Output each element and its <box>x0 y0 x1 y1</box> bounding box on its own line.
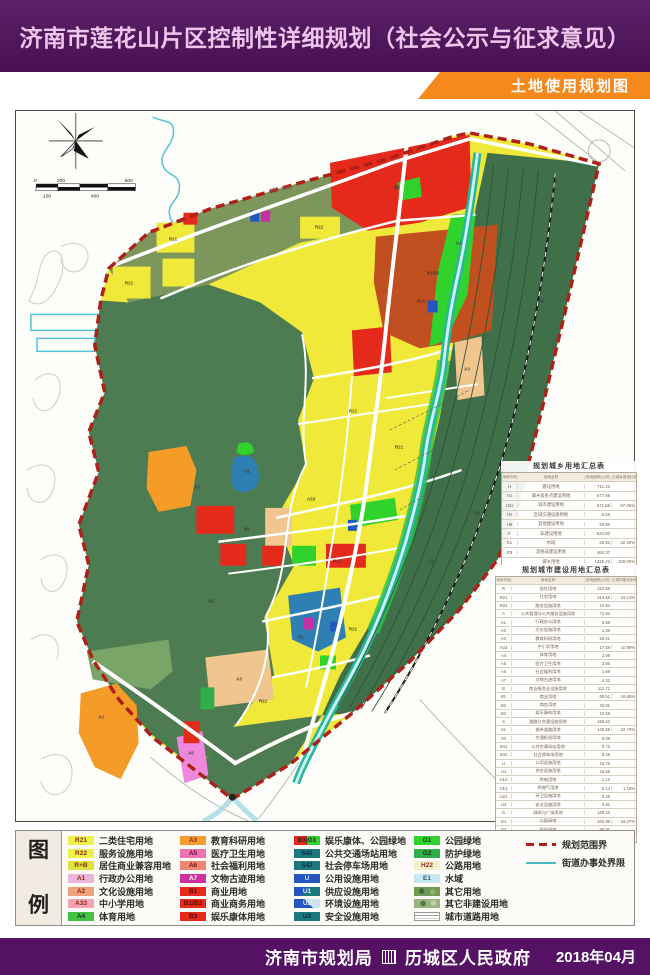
table-cell: 供电用地 <box>512 777 584 783</box>
table-cell: S <box>496 719 512 724</box>
legend-swatch: R22 <box>68 849 94 858</box>
table-cell: E <box>502 531 518 536</box>
table-cell: 55.41 <box>584 636 611 641</box>
table-cell: 10.89% <box>611 645 636 650</box>
legend-swatch: A2 <box>68 887 94 896</box>
table-row: S42社会停车场用地9.28 <box>496 751 636 759</box>
legend-item-label: 教育科研用地 <box>211 834 265 847</box>
table-cell: 城市建设用地 <box>518 502 584 508</box>
boundary-tip-node <box>229 794 236 801</box>
table-cell: 环卫设施用地 <box>512 793 584 799</box>
legend-item: B1/B2商业商务用地 <box>180 898 294 909</box>
table-row: S1城市道路用地145.5822.79% <box>496 726 636 734</box>
table-cell: 42.27% <box>611 819 636 824</box>
table-cell: E1 <box>502 540 518 545</box>
table-cell: 道路与交通设施用地 <box>512 719 584 725</box>
table-cell: A2 <box>496 628 512 633</box>
table-cell: 71.92 <box>584 611 611 616</box>
table-cell: H2 <box>502 512 518 517</box>
table-cell: G1 <box>496 819 512 824</box>
legend-item-label: 服务设施用地 <box>99 847 153 860</box>
legend-swatch: S42 <box>294 861 320 870</box>
table-cell: B <box>496 686 512 691</box>
table-cell: 0.82 <box>584 802 611 807</box>
legend-item-label: 公路用地 <box>445 859 481 872</box>
table-row: H11城市建设用地671.6697.06% <box>502 501 636 510</box>
table-cell: 2.98 <box>584 653 611 658</box>
table-cell: A4 <box>496 653 512 658</box>
table-cell: 行政办公用地 <box>512 619 584 625</box>
legend-item-label: 城市道路用地 <box>445 910 499 923</box>
table-header-row: 用地代码用地名称用地面积(公顷)占城乡用地比例(%) <box>502 473 636 482</box>
legend-swatch: U <box>294 874 320 883</box>
legend-item-label: 体育用地 <box>99 910 135 923</box>
table-row: A公共管理与公共服务设施用地71.92 <box>496 610 636 618</box>
legend-item-label: 街道办事处界限 <box>562 856 625 869</box>
legend-swatch: R+B <box>68 861 94 870</box>
legend-swatch: A5 <box>180 849 206 858</box>
table-cell: 1.68 <box>584 669 611 674</box>
table-cell: 城乡居民点建设用地 <box>518 493 584 499</box>
table-cell: A <box>496 611 512 616</box>
legend-swatch: G1 <box>414 836 440 845</box>
legend-item-label: 规划范围界 <box>562 838 607 851</box>
table-cell: 区域交通设施用地 <box>518 512 584 518</box>
legend-swatch: A3 <box>180 836 206 845</box>
table-row: R22服务设施用地10.84 <box>496 602 636 610</box>
streams <box>203 797 257 821</box>
legend-item: B3|G1娱乐康体、公园绿地 <box>294 835 414 846</box>
legend-item-label: 商业用地 <box>211 885 247 898</box>
table-cell: 145.58 <box>584 727 611 732</box>
table-cell: 娱乐康体用地 <box>512 710 584 716</box>
table-cell: 公共管理与公共服务设施用地 <box>512 611 584 617</box>
table-cell: 用地名称 <box>518 475 584 480</box>
table-cell: 建设用地 <box>518 484 584 490</box>
terrain-contours <box>27 243 88 794</box>
legend-item-label: 防护绿地 <box>445 847 481 860</box>
table-row: E1水域25.8242.40% <box>502 539 636 548</box>
legend-swatch <box>414 887 440 896</box>
legend-item-label: 公园绿地 <box>445 834 481 847</box>
table-cell: 524.00 <box>584 531 611 536</box>
table-row: A5医疗卫生用地2.56 <box>496 660 636 668</box>
legend-item: S41公共交通场站用地 <box>294 848 414 859</box>
table-row: U公用设施用地16.75 <box>496 760 636 768</box>
scale-bar: 0 200 600 100 400 <box>34 178 136 200</box>
legend-item: A4体育用地 <box>68 911 180 922</box>
table-cell: 155.52 <box>584 719 611 724</box>
legend-item: B1商业用地 <box>180 886 294 897</box>
table-row: B3娱乐康体用地10.58 <box>496 710 636 718</box>
table-row: A3教育科研用地55.41 <box>496 635 636 643</box>
legend-swatch: B3 <box>180 912 206 921</box>
seal-icon <box>382 950 396 964</box>
legend-column: R21二类住宅用地R22服务设施用地R+B居住商业兼容用地A1行政办公用地A2文… <box>68 835 180 922</box>
legend-swatch: S41 <box>294 849 320 858</box>
table-cell: 占城市建设用地比例(%) <box>611 578 636 583</box>
legend-line-item: 街道办事处界限 <box>526 857 632 868</box>
table-cell: 10.58 <box>584 711 611 716</box>
legend-swatch: B3|G1 <box>294 836 320 845</box>
table-cell: S42 <box>496 752 512 757</box>
table-cell: 17.59 <box>584 645 611 650</box>
svg-text:100: 100 <box>43 194 52 200</box>
table-cell: 15.68 <box>584 769 611 774</box>
table-cell: 医疗卫生用地 <box>512 661 584 667</box>
table-row: H2区域交通设施用地6.25 <box>502 511 636 520</box>
planning-map: N 0 200 600 100 400 经十东路 R21R21R22B1B1/B… <box>15 110 635 822</box>
table-cell: 2.56 <box>584 661 611 666</box>
legend-item-label: 社会停车场用地 <box>325 859 388 872</box>
table-cell: 体育用地 <box>512 652 584 658</box>
legend-item-label: 环境设施用地 <box>325 897 379 910</box>
table-cell: 9.28 <box>584 752 611 757</box>
summary-table-construction-land: 规划城市建设用地汇总表用地代码用地名称用地面积(公顷)占城市建设用地比例(%)R… <box>495 565 637 843</box>
svg-text:N: N <box>72 111 78 113</box>
table-cell: A6 <box>496 669 512 674</box>
table-cell: 460.37 <box>584 550 611 555</box>
street-boundary-symbol <box>526 862 556 864</box>
legend-item-label: 行政办公用地 <box>99 872 153 885</box>
legend-swatch: E1 <box>414 874 440 883</box>
legend-swatch: A1 <box>68 874 94 883</box>
table-cell: 4.32 <box>584 678 611 683</box>
legend-item: G2防护绿地 <box>414 848 526 859</box>
legend-panel: 图 例 R21二类住宅用地R22服务设施用地R+B居住商业兼容用地A1行政办公用… <box>15 830 635 926</box>
table-row: U13供燃气用地5.141.16% <box>496 784 636 792</box>
table-cell: 商务用地 <box>512 702 584 708</box>
table-cell: 1.16% <box>611 786 636 791</box>
table-cell: 10.84 <box>584 603 611 608</box>
legend-swatch: U1 <box>294 887 320 896</box>
svg-text:400: 400 <box>91 194 100 200</box>
table-cell: 用地名称 <box>512 578 584 583</box>
table-cell: 用地面积(公顷) <box>584 578 611 583</box>
table-cell: 1235.22 <box>584 559 611 564</box>
legend-item: A3教育科研用地 <box>180 835 294 846</box>
table-cell: 677.68 <box>584 493 611 498</box>
legend-swatch: A7 <box>180 874 206 883</box>
table-cell: R <box>496 586 512 591</box>
table-row: S41公共交通场站用地0.73 <box>496 743 636 751</box>
table-cell: B3 <box>496 711 512 716</box>
legend-item: 其它用地 <box>414 886 526 897</box>
table-row: B2商务用地42.91 <box>496 701 636 709</box>
table-row: B1商业用地68.5116.85% <box>496 693 636 701</box>
table-row: U12供电用地1.13 <box>496 776 636 784</box>
table-cell: U13 <box>496 786 512 791</box>
table-cell: A33 <box>496 645 512 650</box>
table-row: A1行政办公用地5.88 <box>496 618 636 626</box>
legend-swatch: G2 <box>414 849 440 858</box>
legend-item: A6社会福利用地 <box>180 860 294 871</box>
table-cell: 公用设施用地 <box>512 760 584 766</box>
table-cell: 文物古迹用地 <box>512 677 584 683</box>
table-row: A6社会福利用地1.68 <box>496 668 636 676</box>
table-cell: 商业服务业设施用地 <box>512 686 584 692</box>
legend-item-label: 其它非建设用地 <box>445 897 508 910</box>
legend-item: U2环境设施用地 <box>294 898 414 909</box>
legend-item: U公用设施用地 <box>294 873 414 884</box>
table-cell: 供燃气用地 <box>512 785 584 791</box>
table-row: A2文化设施用地1.36 <box>496 627 636 635</box>
table-cell: 其他非建设用地 <box>518 549 584 555</box>
table-cell: H11 <box>502 503 518 508</box>
table-cell: 42.40% <box>611 540 636 545</box>
table-cell: 社会福利用地 <box>512 669 584 675</box>
legend-swatch: R21 <box>68 836 94 845</box>
table-cell: 33.13% <box>611 595 636 600</box>
legend-item-label: 医疗卫生用地 <box>211 847 265 860</box>
table-row: S3交通枢纽用地9.38 <box>496 735 636 743</box>
table-cell: 213.55 <box>584 595 611 600</box>
legend-item: R+B居住商业兼容用地 <box>68 860 180 871</box>
table-cell: R21 <box>496 595 512 600</box>
table-cell: B2 <box>496 703 512 708</box>
legend-item-label: 二类住宅用地 <box>99 834 153 847</box>
table-cell: 公园绿地 <box>512 818 584 824</box>
legend-item: A7文物古迹用地 <box>180 873 294 884</box>
table-cell: 其他建设用地 <box>518 521 584 527</box>
legend-item-label: 商业商务用地 <box>211 897 265 910</box>
compass-icon: N <box>49 111 103 169</box>
page-footer: 济南市规划局 历城区人民政府 2018年04月 <box>0 938 650 975</box>
legend-swatch: A33 <box>68 899 94 908</box>
table-row: G绿地与广场用地189.26 <box>496 809 636 817</box>
svg-text:600: 600 <box>125 178 134 184</box>
table-cell: 16.75 <box>584 761 611 766</box>
table-cell: 交通枢纽用地 <box>512 735 584 741</box>
table-cell: 25.82 <box>584 540 611 545</box>
table-cell: 100.00% <box>611 559 636 564</box>
table-cell: S1 <box>496 727 512 732</box>
table-title: 规划城市建设用地汇总表 <box>495 565 637 575</box>
footer-agency-1: 济南市规划局 <box>265 944 373 969</box>
legend-item-label: 水域 <box>445 872 463 885</box>
legend-item-label: 居住商业兼容用地 <box>99 859 171 872</box>
table-cell: 1.13 <box>584 777 611 782</box>
table-cell: 教育科研用地 <box>512 636 584 642</box>
legend-item-label: 社会福利用地 <box>211 859 265 872</box>
table-cell: 住宅用地 <box>512 594 584 600</box>
legend-swatch <box>414 899 440 908</box>
table-cell: 189.26 <box>584 810 611 815</box>
table-cell: E9 <box>502 550 518 555</box>
table-cell: 22.79% <box>611 727 636 732</box>
table-cell: B1 <box>496 694 512 699</box>
table-cell: 222.58 <box>584 586 611 591</box>
legend-swatch: H22 <box>414 861 440 870</box>
table-cell: 用地代码 <box>502 475 518 480</box>
table-cell: A5 <box>496 661 512 666</box>
table-cell: 5.88 <box>584 620 611 625</box>
legend-item-label: 安全设施用地 <box>325 910 379 923</box>
table-cell: 服务设施用地 <box>512 603 584 609</box>
table-cell: A3 <box>496 636 512 641</box>
table-cell: 绿地与广场用地 <box>512 810 584 816</box>
table-row: H9其他建设用地25.90 <box>502 520 636 529</box>
legend-swatch: A4 <box>68 912 94 921</box>
legend-column: G1公园绿地G2防护绿地H22公路用地E1水域其它用地其它非建设用地城市道路用地 <box>414 835 526 922</box>
table-cell: 城市道路用地 <box>512 727 584 733</box>
legend-item: B3娱乐康体用地 <box>180 911 294 922</box>
page-header: 济南市莲花山片区控制性详细规划（社会公示与征求意见） <box>0 0 650 72</box>
table-row: E9其他非建设用地460.37 <box>502 548 636 557</box>
legend-item: G1公园绿地 <box>414 835 526 846</box>
legend-swatch: A6 <box>180 861 206 870</box>
table-cell: 居住用地 <box>512 586 584 592</box>
legend-item-label: 文物古迹用地 <box>211 872 265 885</box>
legend-item: A1行政办公用地 <box>68 873 180 884</box>
table-cell: 111.72 <box>584 686 611 691</box>
table-row: H1城乡居民点建设用地677.68 <box>502 492 636 501</box>
legend-item: E1水域 <box>414 873 526 884</box>
svg-text:0: 0 <box>34 178 37 184</box>
legend-item-label: 公共交通场站用地 <box>325 847 397 860</box>
legend-item-label: 文化设施用地 <box>99 885 153 898</box>
table-cell: U22 <box>496 794 512 799</box>
table-cell: 25.90 <box>584 522 611 527</box>
map-type-label: 土地使用规划图 <box>511 75 630 96</box>
table-row: R居住用地222.58 <box>496 585 636 593</box>
legend-swatch: B1/B2 <box>180 899 206 908</box>
table-cell: 5.14 <box>584 786 611 791</box>
legend-item-label: 中小学用地 <box>99 897 144 910</box>
table-cell: 水域 <box>518 540 584 546</box>
legend-swatch <box>414 912 440 921</box>
table-cell: S3 <box>496 736 512 741</box>
table-cell: 非建设用地 <box>518 531 584 537</box>
legend-item: U3安全设施用地 <box>294 911 414 922</box>
table-cell: H <box>502 484 518 489</box>
table-cell: S41 <box>496 744 512 749</box>
table-cell: 城乡用地 <box>518 559 584 565</box>
table-cell: H1 <box>502 493 518 498</box>
table-row: S道路与交通设施用地155.52 <box>496 718 636 726</box>
legend-column: A3教育科研用地A5医疗卫生用地A6社会福利用地A7文物古迹用地B1商业用地B1… <box>180 835 294 922</box>
legend-item: A33中小学用地 <box>68 898 180 909</box>
legend-item: A2文化设施用地 <box>68 886 180 897</box>
legend-item-label: 娱乐康体用地 <box>211 910 265 923</box>
table-cell: H9 <box>502 522 518 527</box>
legend-swatch: U3 <box>294 912 320 921</box>
svg-text:200: 200 <box>57 178 66 184</box>
table-cell: 97.06% <box>611 503 636 508</box>
table-row: A7文物古迹用地4.32 <box>496 677 636 685</box>
table-cell: 16.85% <box>611 694 636 699</box>
footer-date: 2018年04月 <box>556 946 636 967</box>
table-cell: 42.91 <box>584 703 611 708</box>
table-cell: U <box>496 761 512 766</box>
legend-swatch: U2 <box>294 899 320 908</box>
table-cell: A7 <box>496 678 512 683</box>
summary-table-urban-rural: 规划城乡用地汇总表用地代码用地名称用地面积(公顷)占城乡用地比例(%)H建设用地… <box>501 461 637 567</box>
legend-line-symbols: 规划范围界街道办事处界限 <box>526 835 632 922</box>
legend-columns: R21二类住宅用地R22服务设施用地R+B居住商业兼容用地A1行政办公用地A2文… <box>62 831 634 925</box>
table-row: U3安全设施用地0.82 <box>496 801 636 809</box>
table-cell: R22 <box>496 603 512 608</box>
legend-item: 城市道路用地 <box>414 911 526 922</box>
table-header-row: 用地代码用地名称用地面积(公顷)占城市建设用地比例(%) <box>496 577 636 585</box>
table-cell: A1 <box>496 620 512 625</box>
legend-line-item: 规划范围界 <box>526 839 632 850</box>
table-cell: 商业用地 <box>512 694 584 700</box>
table-cell: 社会停车场用地 <box>512 752 584 758</box>
table-cell: 1.36 <box>584 628 611 633</box>
table-title: 规划城乡用地汇总表 <box>501 461 637 471</box>
legend-item: H22公路用地 <box>414 860 526 871</box>
table-cell: U1 <box>496 769 512 774</box>
table-cell: 公共交通场站用地 <box>512 744 584 750</box>
table-cell: G <box>496 810 512 815</box>
table-cell: 中小学用地 <box>512 644 584 650</box>
legend-swatch: B1 <box>180 887 206 896</box>
table-cell: 占城乡用地比例(%) <box>611 475 636 480</box>
map-type-banner: 土地使用规划图 <box>418 72 650 99</box>
table-row: U22环卫设施用地0.25 <box>496 793 636 801</box>
legend-item-label: 其它用地 <box>445 885 481 898</box>
table-cell: 711.43 <box>584 484 611 489</box>
legend-item: S42社会停车场用地 <box>294 860 414 871</box>
legend-column: B3|G1娱乐康体、公园绿地S41公共交通场站用地S42社会停车场用地U公用设施… <box>294 835 414 922</box>
table-cell: 文化设施用地 <box>512 627 584 633</box>
table-cell: 安全设施用地 <box>512 802 584 808</box>
page-title: 济南市莲花山片区控制性详细规划（社会公示与征求意见） <box>20 19 631 53</box>
legend-item-label: 供应设施用地 <box>325 885 379 898</box>
table-cell: 671.66 <box>584 503 611 508</box>
table-cell: 用地面积(公顷) <box>584 475 611 480</box>
footer-agency-2: 历城区人民政府 <box>405 944 531 969</box>
legend-item-label: 娱乐康体、公园绿地 <box>325 834 406 847</box>
table-row: A33中小学用地17.5910.89% <box>496 643 636 651</box>
legend-item-label: 公用设施用地 <box>325 872 379 885</box>
table-cell: U12 <box>496 777 512 782</box>
table-row: G1公园绿地102.3542.27% <box>496 818 636 826</box>
table-cell: 6.25 <box>584 512 611 517</box>
legend-title: 图 例 <box>16 831 62 925</box>
legend-item: 其它非建设用地 <box>414 898 526 909</box>
legend-item: A5医疗卫生用地 <box>180 848 294 859</box>
legend-item: U1供应设施用地 <box>294 886 414 897</box>
table-row: B商业服务业设施用地111.72 <box>496 685 636 693</box>
table-row: E非建设用地524.00 <box>502 529 636 538</box>
legend-item: R21二类住宅用地 <box>68 835 180 846</box>
table-cell: 68.51 <box>584 694 611 699</box>
table-cell: U3 <box>496 802 512 807</box>
table-row: U1供应设施用地15.68 <box>496 768 636 776</box>
table-cell: 9.38 <box>584 736 611 741</box>
table-cell: 0.25 <box>584 794 611 799</box>
table-cell: 0.73 <box>584 744 611 749</box>
table-cell: 供应设施用地 <box>512 768 584 774</box>
boundary-line-symbol <box>526 843 556 847</box>
legend-item: R22服务设施用地 <box>68 848 180 859</box>
table-row: H建设用地711.43 <box>502 482 636 491</box>
table-cell: 102.35 <box>584 819 611 824</box>
table-row: R21住宅用地213.5533.13% <box>496 594 636 602</box>
table-cell: 用地代码 <box>496 578 512 583</box>
table-row: A4体育用地2.98 <box>496 652 636 660</box>
